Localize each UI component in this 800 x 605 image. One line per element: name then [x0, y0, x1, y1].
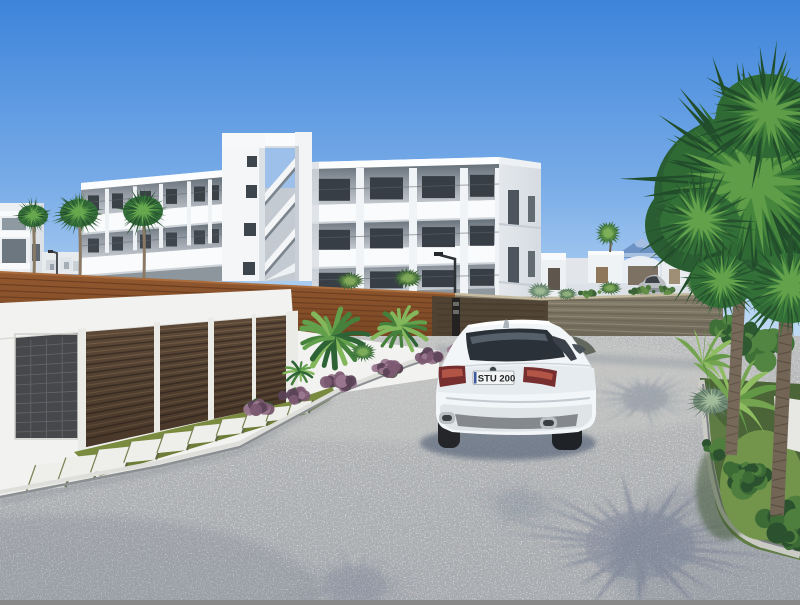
svg-text:STU 200: STU 200 — [478, 374, 516, 385]
